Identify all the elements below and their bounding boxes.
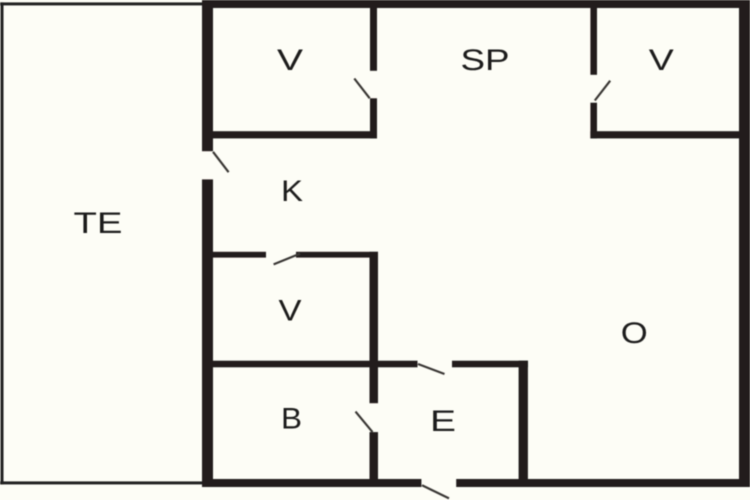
svg-text:V: V [277,44,303,77]
svg-text:SP: SP [461,44,510,77]
svg-text:TE: TE [74,207,123,240]
svg-text:O: O [621,317,648,350]
svg-text:E: E [430,405,456,438]
svg-text:K: K [281,175,303,208]
svg-text:V: V [649,44,674,77]
svg-text:V: V [279,294,302,327]
svg-text:B: B [281,402,302,435]
